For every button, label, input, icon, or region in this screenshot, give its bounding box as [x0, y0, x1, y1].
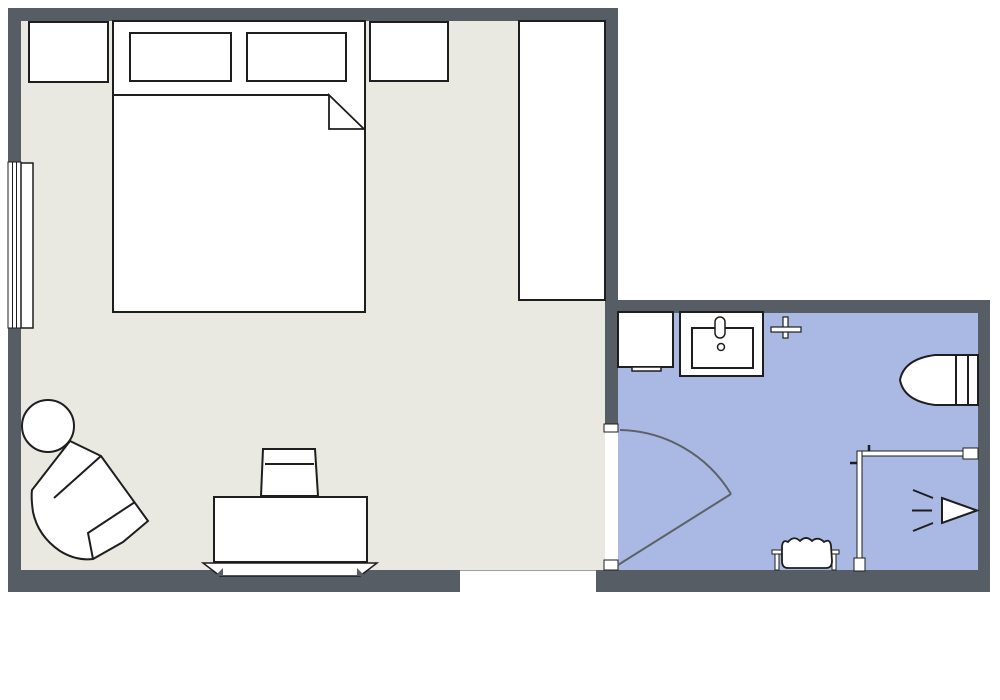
sink-faucet [715, 317, 725, 338]
desk-plinth [203, 563, 377, 576]
wall-top [8, 8, 618, 21]
pillow-left [130, 33, 231, 81]
towel [782, 538, 832, 568]
bathroom-door-jamb-bottom [604, 560, 618, 570]
nightstand-left [29, 22, 108, 82]
floor-plan-canvas [0, 0, 1000, 700]
desk [214, 497, 367, 562]
shower-glass-cap-right [963, 448, 978, 459]
towel-hook-horizontal [771, 327, 801, 332]
bathroom-door-jamb-top [604, 424, 618, 432]
sink-drain [718, 344, 725, 351]
wall-bathroom-right [978, 300, 990, 592]
floor-plan-svg [0, 0, 1000, 700]
desk-chair [261, 449, 318, 496]
window [8, 162, 21, 328]
window-leaf [21, 163, 33, 328]
bathroom-cabinet [618, 312, 673, 367]
pillow-right [247, 33, 346, 81]
bathroom-door-opening [605, 424, 618, 570]
bathroom-cabinet-ledge [632, 367, 661, 371]
shower-glass-cap-bottom [854, 558, 865, 571]
shower-glass-horizontal [857, 451, 963, 456]
toilet [900, 355, 978, 405]
towel-rail-post-left [775, 554, 779, 570]
shower-glass-vertical [857, 451, 862, 560]
side-table [22, 400, 74, 452]
entry-opening [460, 570, 596, 592]
nightstand-right [370, 22, 448, 81]
wardrobe [519, 21, 605, 300]
